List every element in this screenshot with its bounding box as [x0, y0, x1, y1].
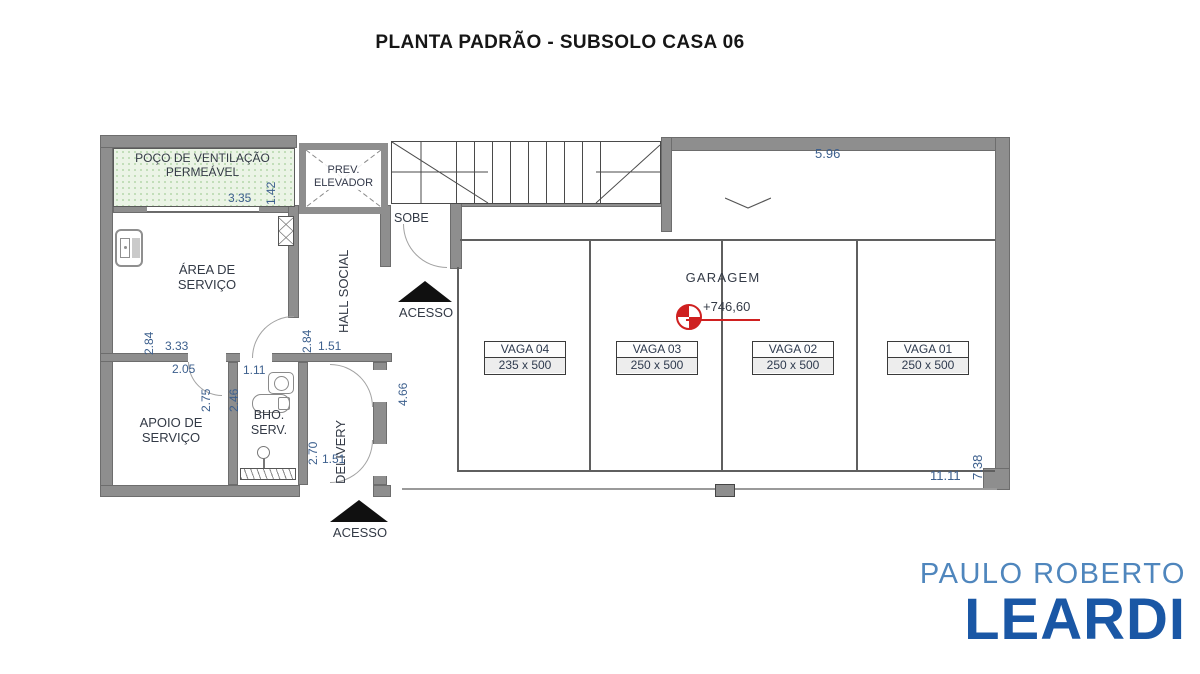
- dim-garage-height: 7.38: [970, 432, 985, 480]
- wall-bottom: [100, 485, 300, 497]
- room-label-bho: BHO. SERV.: [242, 408, 296, 438]
- floor-plan-sheet: PLANTA PADRÃO - SUBSOLO CASA 06 POÇO DE …: [0, 0, 1200, 674]
- room-label-poco: POÇO DE VENTILAÇÃO PERMEÁVEL: [135, 151, 270, 179]
- room-label-hall-social: HALL SOCIAL: [336, 228, 351, 333]
- access-arrow-upper-icon: [398, 281, 452, 302]
- door-opening-delivery-bottom: [373, 444, 387, 476]
- dim-bho-width: 1.11: [243, 363, 265, 377]
- stair-direction-chevron-icon: [725, 196, 771, 211]
- vaga-04-size: 235 x 500: [485, 358, 565, 373]
- room-label-garagem: GARAGEM: [668, 270, 778, 285]
- vaga-03-size: 250 x 500: [617, 358, 697, 373]
- stall-divider-1: [589, 240, 591, 471]
- dim-hall-height: 2.84: [300, 308, 314, 353]
- column: [715, 484, 735, 497]
- page-title: PLANTA PADRÃO - SUBSOLO CASA 06: [180, 32, 940, 54]
- dim-driveway-width: 5.96: [815, 146, 840, 161]
- shower-drain-icon: [240, 468, 296, 480]
- dim-poco-height: 1.42: [264, 160, 278, 205]
- vaga-02-name: VAGA 02: [753, 342, 833, 358]
- room-label-area-servico: ÁREA DE SERVIÇO: [152, 262, 262, 293]
- sink-icon: [268, 372, 294, 394]
- room-label-apoio: APOIO DE SERVIÇO: [115, 415, 227, 446]
- dim-area-width: 3.33: [165, 339, 188, 353]
- room-label-delivery: DELIVERY: [333, 382, 348, 484]
- door-opening-apoio: [188, 353, 226, 362]
- dim-poco-width: 3.35: [228, 191, 251, 205]
- dim-delivery-height: 2.70: [306, 420, 320, 465]
- vaga-01-box: VAGA 01 250 x 500: [887, 341, 969, 375]
- dim-bho-height: 2.46: [227, 372, 241, 412]
- vaga-04-box: VAGA 04 235 x 500: [484, 341, 566, 375]
- wall-garage-entry-stub: [661, 137, 672, 232]
- wall-right: [995, 137, 1010, 474]
- level-marker-icon: [676, 304, 702, 330]
- ground-line: [402, 488, 997, 490]
- garage-top-line: [460, 239, 995, 241]
- dim-apoio-width: 2.05: [172, 362, 195, 376]
- dim-corridor-height: 4.66: [396, 358, 410, 406]
- shaft-box-icon: [278, 216, 294, 246]
- vaga-03-box: VAGA 03 250 x 500: [616, 341, 698, 375]
- vaga-04-name: VAGA 04: [485, 342, 565, 358]
- dim-garage-width: 11.11: [930, 468, 961, 483]
- garage-bottom-line: [457, 470, 995, 472]
- dim-delivery-width: 1.51: [322, 452, 345, 466]
- door-arc-sobe: [403, 224, 447, 268]
- access-label-lower: ACESSO: [324, 525, 396, 540]
- vaga-02-size: 250 x 500: [753, 358, 833, 373]
- door-arc-area-servico: [252, 316, 294, 358]
- door-opening-delivery-top: [373, 370, 387, 402]
- stairs-sobe-label: SOBE: [394, 211, 429, 225]
- elevator-shaft: PREV. ELEVADOR: [299, 143, 388, 214]
- room-label-elevador: PREV. ELEVADOR: [310, 164, 377, 190]
- wall-top-left: [100, 135, 297, 148]
- vaga-03-name: VAGA 03: [617, 342, 697, 358]
- realtor-logo: PAULO ROBERTO LEARDI: [920, 560, 1186, 649]
- dim-apoio-height: 2.75: [199, 370, 213, 412]
- dim-hall-width: 1.51: [318, 339, 341, 353]
- stair-diagonals: [392, 142, 660, 203]
- logo-bottom-line: LEARDI: [920, 591, 1186, 649]
- vaga-01-size: 250 x 500: [888, 358, 968, 373]
- vaga-02-box: VAGA 02 250 x 500: [752, 341, 834, 375]
- stall-divider-3: [856, 240, 858, 471]
- wall-left: [100, 135, 113, 497]
- wall-bottom-cap: [373, 485, 391, 497]
- stairs: [391, 141, 661, 204]
- access-arrow-lower-icon: [330, 500, 388, 522]
- vaga-01-name: VAGA 01: [888, 342, 968, 358]
- access-label-upper: ACESSO: [392, 305, 460, 320]
- level-value: +746,60: [703, 299, 750, 314]
- level-underline: [686, 319, 760, 321]
- wall-corridor-right: [450, 197, 462, 269]
- laundry-tank-icon: [115, 229, 143, 267]
- wall-hall-right: [380, 205, 391, 267]
- garage-left-line: [457, 267, 459, 472]
- dim-area-height: 2.84: [142, 310, 156, 355]
- logo-top-line: PAULO ROBERTO: [920, 560, 1186, 589]
